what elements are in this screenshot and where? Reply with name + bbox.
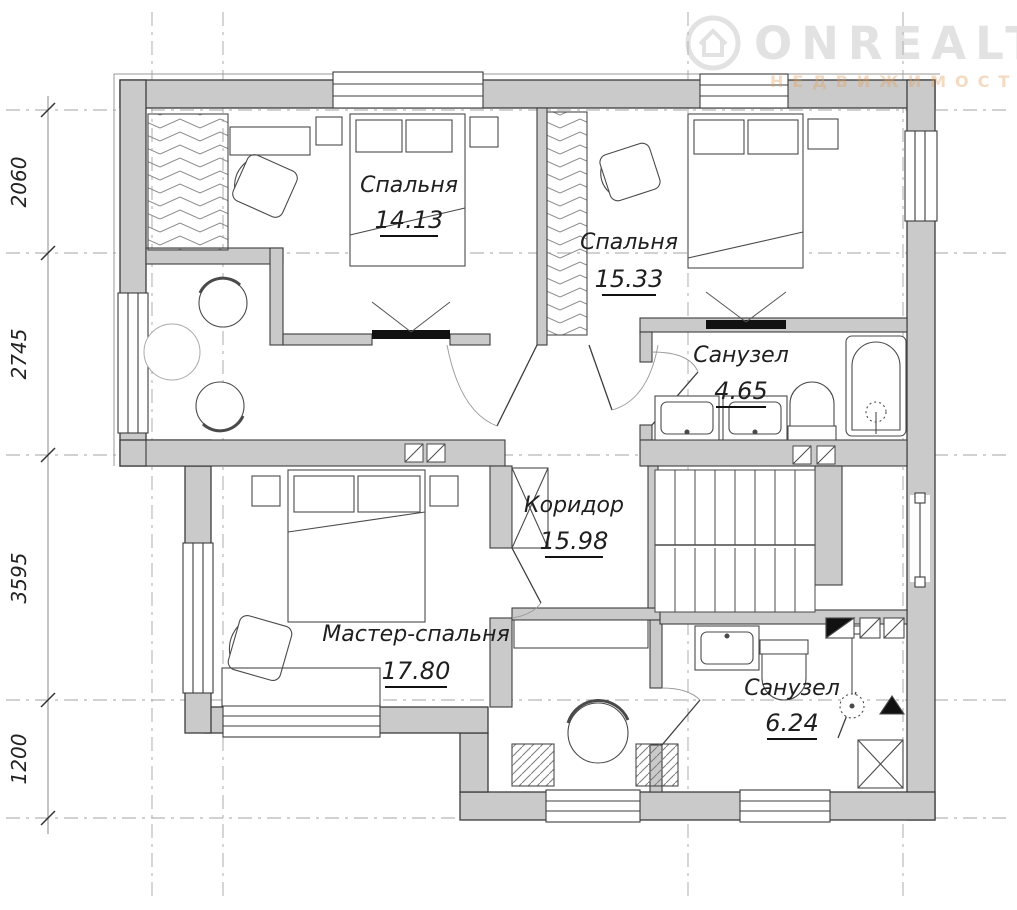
- nightstand: [252, 476, 280, 506]
- area-bathroom-1: 4.65: [714, 377, 767, 405]
- round-table: [144, 324, 200, 380]
- door-bathroom-2: [662, 688, 700, 745]
- threshold-bedroom-1: [372, 330, 450, 339]
- window-master-bottom: [223, 705, 380, 737]
- window-top-2: [700, 74, 788, 108]
- desk: [230, 127, 310, 155]
- label-bedroom-1: Спальня: [360, 173, 458, 198]
- threshold-bedroom-2: [706, 320, 786, 329]
- vent-shaft-bottom-right: [858, 740, 903, 788]
- area-master-bedroom: 17.80: [382, 657, 451, 685]
- area-corridor: 15.98: [540, 527, 609, 555]
- dim-1200: 1200: [7, 734, 31, 785]
- desk-chair: [227, 151, 300, 220]
- floor-plan-drawing: 2060 2745 3595 1200: [0, 0, 1017, 910]
- vent-boxes: [826, 618, 904, 638]
- desk: [514, 620, 648, 648]
- wardrobe-hatch: [547, 112, 587, 335]
- sink: [695, 626, 759, 670]
- window-right-narrow: [910, 493, 930, 587]
- toilet: [788, 382, 836, 440]
- desk: [222, 668, 380, 706]
- closet-hatch: [512, 744, 554, 786]
- dim-2060: 2060: [7, 157, 31, 208]
- armchair: [199, 278, 247, 327]
- desk-chair: [595, 141, 663, 204]
- label-corridor: Коридор: [524, 493, 624, 518]
- dim-2745: 2745: [7, 329, 31, 380]
- nightstand: [430, 476, 458, 506]
- label-bedroom-2: Спальня: [580, 230, 678, 255]
- nightstand: [808, 119, 838, 149]
- door-bedroom-1: [447, 345, 537, 426]
- double-bed: [288, 470, 425, 622]
- floor-plan-page: 2060 2745 3595 1200: [0, 0, 1017, 910]
- bathtub: [846, 336, 906, 436]
- office-chair: [568, 701, 628, 763]
- area-bathroom-2: 6.24: [765, 709, 818, 737]
- window-right: [905, 131, 937, 221]
- shelf: [316, 117, 342, 145]
- bathroom-2-fixtures: [695, 618, 904, 718]
- armchair: [196, 382, 244, 431]
- wardrobe-hatch: [148, 114, 228, 250]
- label-bathroom-1: Санузел: [693, 343, 789, 368]
- sitting-nook-furniture: [144, 278, 247, 431]
- label-master-bedroom: Мастер-спальня: [322, 622, 509, 647]
- shower-head: [840, 626, 864, 718]
- dim-3595: 3595: [7, 553, 31, 604]
- window-left-upper: [118, 293, 148, 433]
- label-bathroom-2: Санузел: [744, 676, 840, 701]
- nightstand: [470, 117, 498, 147]
- window-bottom-1: [546, 790, 640, 822]
- bedroom-2-furniture: [547, 112, 838, 335]
- closet-hatch: [636, 744, 678, 786]
- dimension-chain: 2060 2745 3595 1200: [7, 96, 55, 834]
- direction-triangle: [880, 696, 904, 714]
- window-master-left: [183, 543, 213, 693]
- sink: [655, 396, 719, 440]
- window-top-1: [333, 72, 483, 108]
- area-bedroom-2: 15.33: [595, 265, 664, 293]
- window-bottom-2: [740, 790, 830, 822]
- double-bed: [688, 114, 803, 268]
- area-bedroom-1: 14.13: [375, 206, 444, 234]
- stairs: [655, 470, 815, 612]
